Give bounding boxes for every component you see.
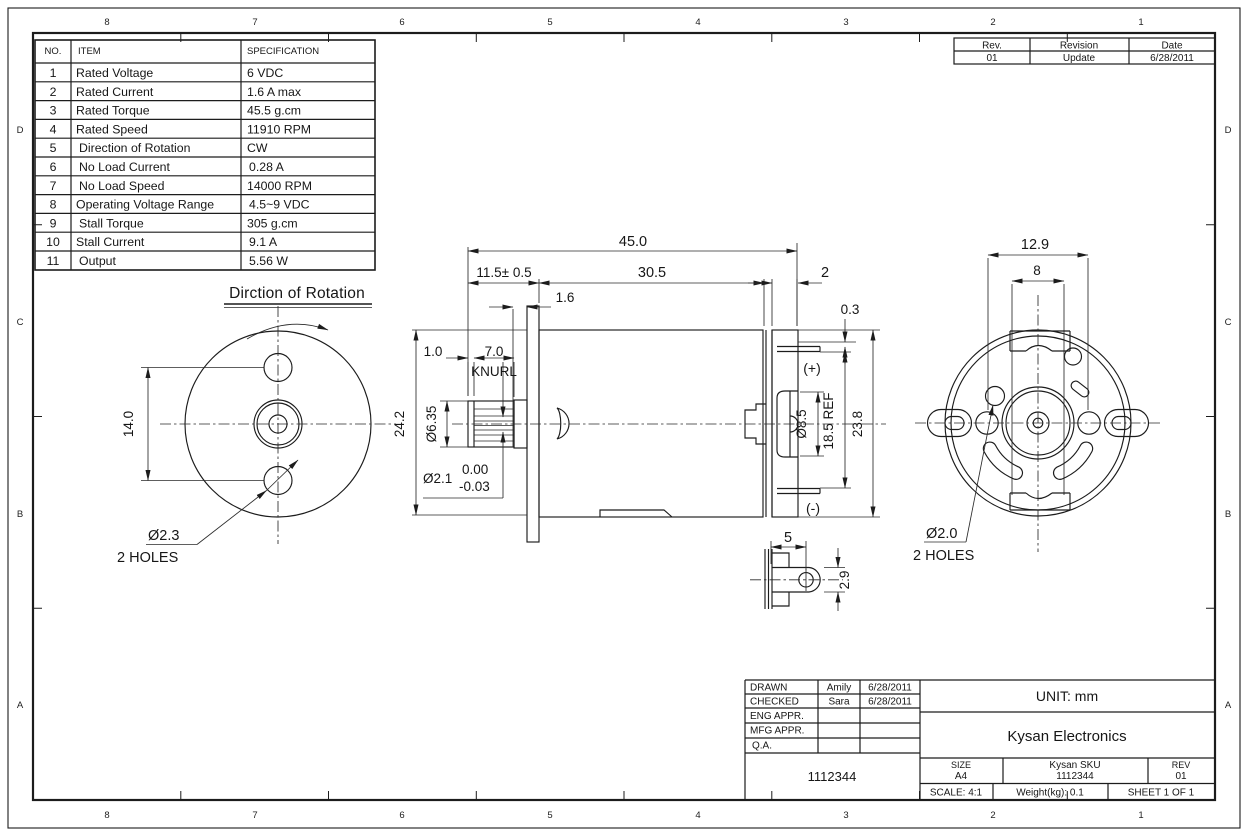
spec-value: 305 g.cm [247, 216, 298, 230]
spec-no: 3 [50, 104, 57, 118]
arc-slot-left [983, 442, 1022, 479]
approval-label: Q.A. [752, 741, 772, 752]
spec-header-spec: SPECIFICATION [247, 46, 319, 57]
dim-boss-dia: Ø8.5 [794, 409, 809, 438]
zone-left-b: B [17, 509, 23, 520]
zone-top-3: 3 [843, 17, 848, 28]
hole-callout-note: 2 HOLES [117, 550, 178, 566]
unit-label: UNIT: mm [1036, 688, 1098, 704]
rev-revision-value: Update [1063, 53, 1096, 64]
dim-body-od: 23.8 [850, 411, 865, 437]
zone-right-a: A [1225, 700, 1232, 711]
approval-name: Amily [827, 683, 851, 694]
rev-date-value: 6/28/2011 [1150, 53, 1194, 64]
rev-label: REV [1172, 760, 1191, 770]
approval-date: 6/28/2011 [868, 697, 912, 708]
spec-item: Output [79, 254, 116, 268]
spec-rows: 1 Rated Voltage 6 VDC 2 Rated Current 1.… [46, 66, 312, 268]
spec-item: Operating Voltage Range [76, 198, 214, 212]
spec-value: 14000 RPM [247, 179, 312, 193]
approval-label: ENG APPR. [750, 711, 804, 722]
company-name: Kysan Electronics [1007, 728, 1126, 745]
dim-flange-thickness: 1.6 [556, 290, 575, 305]
spec-value: CW [247, 141, 268, 155]
dim-rear-hole-spacing: 12.9 [1021, 237, 1049, 253]
zone-labels-top: 8 7 6 5 4 3 2 1 [104, 17, 1143, 28]
dim-brush-width: 8 [1033, 263, 1041, 278]
dim-shaft-extension: 11.5± 0.5 [476, 265, 531, 280]
zone-right-b: B [1225, 509, 1231, 520]
drawing-number: 1112344 [808, 769, 857, 784]
dim-flange-od: 24.2 [392, 411, 407, 437]
zone-top-1: 1 [1138, 17, 1143, 28]
spec-no: 5 [50, 141, 57, 155]
rev-header-revision: Revision [1060, 41, 1098, 52]
size-value: A4 [955, 771, 968, 782]
dim-hole-spacing: 14.0 [121, 411, 136, 437]
rear-view: 12.9 8 Ø2.0 2 HOLES [913, 237, 1162, 564]
side-view: 45.0 11.5± 0.5 30.5 2 1.6 0.3 1.0 7.0 KN… [392, 234, 886, 542]
spec-item: No Load Speed [79, 179, 165, 193]
spec-value: 9.1 A [249, 235, 278, 249]
body-notch [600, 510, 672, 517]
knurl-label: KNURL [471, 364, 517, 379]
approval-label: MFG APPR. [750, 726, 804, 737]
motor-body [539, 330, 763, 517]
angled-slot [1069, 379, 1090, 398]
zone-top-8: 8 [104, 17, 109, 28]
hole-callout-dia: Ø2.3 [148, 528, 179, 544]
zone-left-c: C [17, 317, 24, 328]
spec-value: 1.6 A max [247, 85, 302, 99]
dim-terminal-height: 2.9 [837, 571, 852, 590]
spec-item: Rated Speed [76, 122, 148, 136]
weight-value: Weight(kg): 0.1 [1016, 788, 1084, 799]
dim-terminal-width: 5 [784, 530, 792, 546]
dim-endcap: 2 [821, 265, 829, 281]
zone-labels-bottom: 8 7 6 5 4 3 2 1 [104, 810, 1143, 821]
spec-item: Rated Torque [76, 104, 150, 118]
spec-item: Stall Current [76, 235, 145, 249]
approval-date: 6/28/2011 [868, 683, 912, 694]
rev-value: 01 [986, 53, 998, 64]
spec-table: NO. ITEM SPECIFICATION 1 Rated Voltage 6… [35, 40, 375, 270]
spec-no: 2 [50, 85, 57, 99]
spec-no: 6 [50, 160, 57, 174]
zone-bottom-3: 3 [843, 810, 848, 821]
spec-header-no: NO. [45, 46, 62, 57]
revision-table: Rev. Revision Date 01 Update 6/28/2011 [954, 38, 1215, 64]
spec-no: 7 [50, 179, 57, 193]
sku-value: 1112344 [1056, 771, 1094, 782]
spec-item: Stall Torque [79, 216, 144, 230]
vent-crescent [557, 408, 569, 439]
tol-upper: 0.00 [462, 462, 488, 477]
rear-callout-dia: Ø2.0 [926, 526, 957, 542]
spec-item: No Load Current [79, 160, 170, 174]
spec-no: 4 [50, 122, 57, 136]
sheet-value: SHEET 1 OF 1 [1128, 788, 1195, 799]
zone-bottom-1: 1 [1138, 810, 1143, 821]
spec-value: 4.5~9 VDC [249, 198, 310, 212]
zone-top-6: 6 [399, 17, 404, 28]
zone-right-c: C [1225, 317, 1232, 328]
rev-header-date: Date [1161, 41, 1183, 52]
dim-shaft-dia: Ø2.1 [423, 471, 452, 486]
zone-top-2: 2 [990, 17, 995, 28]
spec-no: 9 [50, 216, 57, 230]
zone-labels-left: D C B A [17, 125, 24, 711]
zone-bottom-4: 4 [695, 810, 700, 821]
approval-label: DRAWN [750, 683, 787, 694]
spec-item: Direction of Rotation [79, 141, 191, 155]
zone-bottom-8: 8 [104, 810, 109, 821]
drawing-sheet: 8 7 6 5 4 3 2 1 8 7 6 5 4 3 2 1 D C B A … [0, 0, 1248, 836]
zone-left-a: A [17, 700, 24, 711]
dim-body-length: 30.5 [638, 265, 666, 281]
spec-value: 0.28 A [249, 160, 285, 174]
spec-value: 11910 RPM [247, 122, 311, 136]
rev-value: 01 [1175, 771, 1187, 782]
dim-overall-length: 45.0 [619, 234, 647, 250]
dim-terminal-span: 18.5 REF [821, 392, 836, 449]
size-label: SIZE [951, 760, 971, 770]
spec-item: Rated Voltage [76, 66, 153, 80]
spec-no: 10 [46, 235, 60, 249]
dim-knurl-length: 7.0 [485, 344, 504, 359]
spec-no: 11 [47, 254, 60, 268]
approval-label: CHECKED [750, 697, 799, 708]
spec-no: 1 [50, 66, 57, 80]
title-block: DRAWN Amily 6/28/2011 CHECKED Sara 6/28/… [745, 680, 1215, 800]
engineering-drawing: 8 7 6 5 4 3 2 1 8 7 6 5 4 3 2 1 D C B A … [0, 0, 1248, 836]
dim-shaft-tip: 1.0 [424, 344, 443, 359]
rear-callout-note: 2 HOLES [913, 548, 974, 564]
scale-value: SCALE: 4:1 [930, 788, 983, 799]
zone-top-5: 5 [547, 17, 552, 28]
dim-tab-offset: 0.3 [841, 302, 860, 317]
spec-header-item: ITEM [78, 46, 101, 57]
zone-right-d: D [1225, 125, 1232, 136]
sheet-frame: 8 7 6 5 4 3 2 1 8 7 6 5 4 3 2 1 D C B A … [8, 8, 1240, 828]
tol-lower: -0.03 [459, 479, 490, 494]
zone-top-7: 7 [252, 17, 257, 28]
zone-bottom-2: 2 [990, 810, 995, 821]
zone-bottom-5: 5 [547, 810, 552, 821]
zone-top-4: 4 [695, 17, 700, 28]
approval-rows: DRAWN Amily 6/28/2011 CHECKED Sara 6/28/… [750, 683, 912, 752]
dim-knurl-dia: Ø6.35 [424, 406, 439, 443]
arc-slot-right [1054, 442, 1093, 479]
terminal-minus-label: (-) [806, 500, 820, 516]
front-view: Dirction of Rotation 14.0 Ø2.3 2 HOLES [117, 285, 396, 566]
terminal-detail: 5 2.9 [750, 530, 852, 611]
spec-value: 45.5 g.cm [247, 104, 301, 118]
zone-bottom-6: 6 [399, 810, 404, 821]
spec-item: Rated Current [76, 85, 154, 99]
approval-name: Sara [828, 697, 850, 708]
terminal-plus-label: (+) [803, 360, 821, 376]
rev-header-rev: Rev. [982, 41, 1002, 52]
zone-left-d: D [17, 125, 24, 136]
rotation-direction-label: Dirction of Rotation [229, 285, 365, 302]
sku-label: Kysan SKU [1049, 760, 1100, 771]
zone-labels-right: D C B A [1225, 125, 1232, 711]
spec-value: 6 VDC [247, 66, 283, 80]
zone-bottom-7: 7 [252, 810, 257, 821]
spec-value: 5.56 W [249, 254, 288, 268]
spec-no: 8 [50, 198, 57, 212]
